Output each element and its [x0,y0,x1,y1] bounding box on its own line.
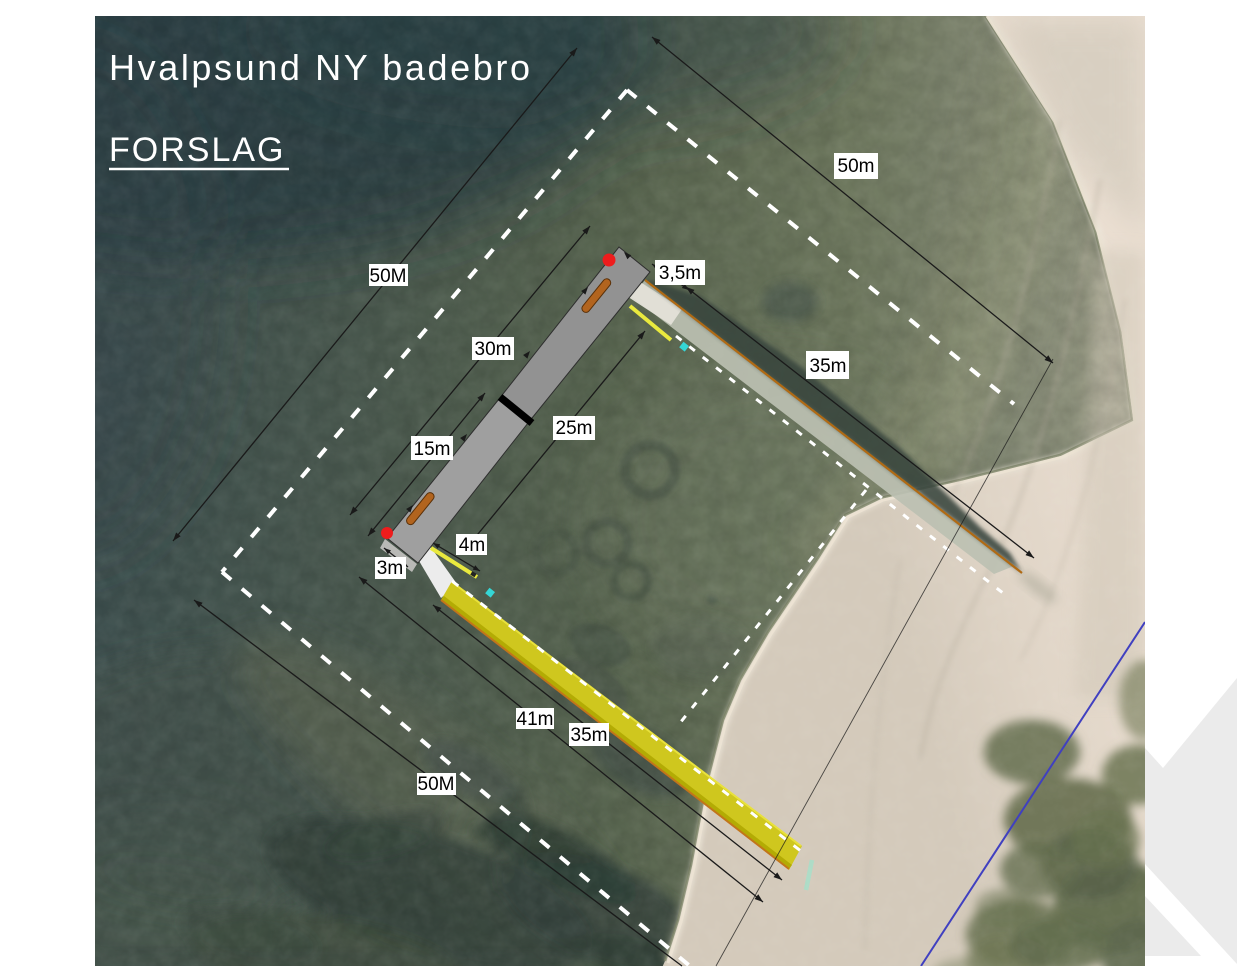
svg-text:3m: 3m [377,558,403,579]
svg-text:50M: 50M [370,266,407,287]
svg-text:15m: 15m [414,439,451,460]
svg-text:30m: 30m [475,339,512,360]
svg-text:Hvalpsund NY badebro: Hvalpsund NY badebro [109,47,533,88]
svg-text:41m: 41m [517,709,554,730]
svg-text:50m: 50m [838,156,875,177]
svg-text:3,5m: 3,5m [659,263,701,284]
svg-text:25m: 25m [556,418,593,439]
svg-text:35m: 35m [571,725,608,746]
svg-text:4m: 4m [459,535,485,556]
svg-text:35m: 35m [810,356,847,377]
svg-text:FORSLAG: FORSLAG [109,131,285,169]
svg-text:50M: 50M [418,774,455,795]
